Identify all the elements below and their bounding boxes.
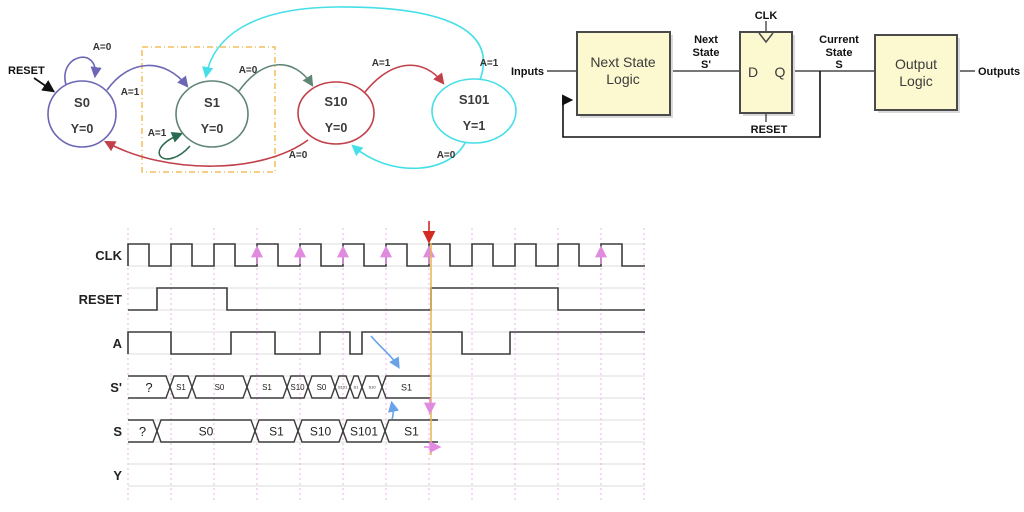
output-logic-label2: Logic [899,73,932,89]
state-output: Y=1 [463,119,486,133]
bus-cell-label: S0 [199,425,214,439]
transition-label: A=0 [289,150,308,161]
transition-label: A=0 [437,150,456,161]
transition-label: A=0 [239,65,258,76]
state-name: S1 [204,95,220,110]
state-s1: S1 Y=0 [176,81,248,147]
current-state-signal-label3: S [835,59,842,71]
bus-cell-label: S0 [215,383,225,392]
bus-cell-label: S10 [310,425,332,439]
transition-label: A=1 [372,58,391,69]
signal-label-sprime: S' [110,380,122,395]
dff-reset-label: RESET [751,124,788,136]
signal-labels: CLK RESET A S' S Y [79,248,123,483]
signal-label-a: A [113,336,123,351]
bus-cell-label: S1 [401,382,412,392]
timing-diagram: ?S1S0S1S10S0S101S1S10S1?S0S1S10S101S1 CL… [79,221,645,500]
bus-cell-label: S1 [269,425,284,439]
blue-arrow-s-to-sprime [392,404,393,419]
next-state-logic-label: Next State [590,54,656,70]
dff-d-label: D [748,64,758,80]
bus-cell-label: S1 [176,383,186,392]
blue-arrow-a-to-sprime [371,336,398,366]
transition-label: A=1 [148,128,167,139]
transition-s0-to-s1 [107,65,187,90]
bus-cell-label: S0 [317,383,327,392]
outputs-label: Outputs [978,66,1020,78]
state-name: S10 [324,94,347,109]
bus-cell-label: S101 [338,385,348,390]
bus-cell-label: S101 [350,425,378,439]
transition-s10-to-s101 [365,65,443,92]
bus-cell-label: ? [139,424,146,439]
clk-label: CLK [755,10,778,22]
state-circle [48,81,116,147]
signal-label-reset: RESET [79,292,122,307]
state-name: S101 [459,92,489,107]
next-state-signal-label3: S' [701,59,711,71]
transition-label: A=1 [480,58,499,69]
current-state-signal-label2: State [826,47,853,59]
signal-label-clk: CLK [95,248,122,263]
state-output: Y=0 [71,122,94,136]
state-name: S0 [74,95,90,110]
signal-label-s: S [113,424,122,439]
diagram-canvas: A=0 A=1 A=1 A=0 A=1 A=1 A=0 A=0 RESET S0… [0,0,1024,512]
bus-cell-label: S10 [290,383,305,392]
current-state-signal-label: Current [819,34,859,46]
clock-gridlines [128,228,644,500]
reset-entry-arrow [34,78,53,91]
reset-entry-label: RESET [8,65,45,77]
dff-q-label: Q [775,64,786,80]
state-diagram: A=0 A=1 A=1 A=0 A=1 A=1 A=0 A=0 RESET S0… [8,7,516,172]
block-diagram: Next State Logic D Q CLK RESET Output Lo… [511,10,1020,137]
bus-cell-label: S1 [262,383,272,392]
transition-label: A=1 [121,87,140,98]
state-output: Y=0 [201,122,224,136]
state-s101: S101 Y=1 [432,79,516,143]
state-s10: S10 Y=0 [298,82,374,144]
bus-cell-label: S1 [354,385,360,390]
signal-label-y: Y [113,468,122,483]
transition-label: A=0 [93,42,112,53]
next-state-signal-label2: State [693,47,720,59]
state-circle [176,81,248,147]
next-state-logic-label2: Logic [606,71,639,87]
state-circle [432,79,516,143]
state-output: Y=0 [325,121,348,135]
output-logic-label: Output [895,56,937,72]
fsm-lecture-figure: A=0 A=1 A=1 A=0 A=1 A=1 A=0 A=0 RESET S0… [0,0,1024,512]
bus-cell-label: S10 [368,385,376,390]
bus-waveforms: ?S1S0S1S10S0S101S1S10S1?S0S1S10S101S1 [128,376,438,442]
state-s0: S0 Y=0 [48,81,116,147]
next-state-signal-label: Next [694,34,718,46]
bus-cell-label: ? [145,380,152,395]
bus-cell-label: S1 [404,425,419,439]
inputs-label: Inputs [511,66,544,78]
